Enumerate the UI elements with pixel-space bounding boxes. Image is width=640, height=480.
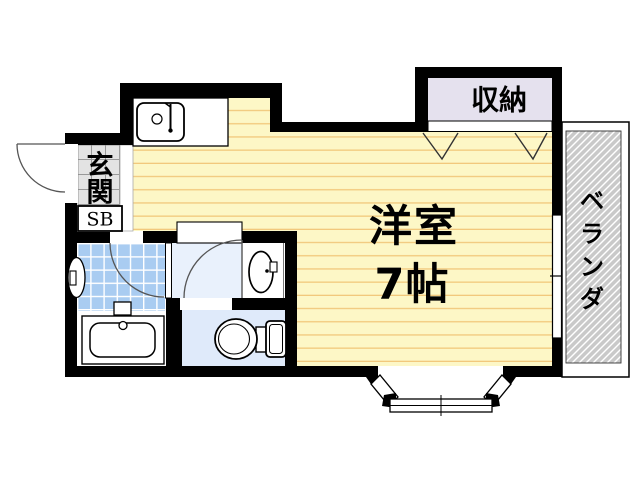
floor-plan-canvas: 洋室 7帖 収納 玄 関 SB ベ ラ ン ダ <box>0 0 640 480</box>
bathroom-tile-floor <box>77 243 165 311</box>
label-veranda-char2: ラ <box>580 220 604 248</box>
wall-bath-top-b <box>143 231 177 243</box>
washbasin-tap-dot <box>265 269 269 273</box>
label-living-size: 7帖 <box>375 260 450 310</box>
label-genkan-char2: 関 <box>87 178 114 209</box>
shower-fixture <box>70 271 76 285</box>
floor-plan-svg: 洋室 7帖 収納 玄 関 SB ベ ラ ン ダ <box>0 0 640 480</box>
sink-faucet-base <box>168 128 172 132</box>
label-closet: 収納 <box>471 84 527 117</box>
bathroom-door-opening <box>110 232 143 243</box>
wall-bottom-right <box>503 366 562 377</box>
label-genkan: 玄 関 <box>87 150 114 209</box>
toilet <box>215 319 286 359</box>
wall-top-left <box>120 83 282 98</box>
washroom-door <box>177 222 242 243</box>
label-veranda-char4: ダ <box>580 285 604 313</box>
bathtub <box>82 316 164 364</box>
wall-top-mid <box>282 122 420 132</box>
wall-washroom-bottom-a <box>166 298 180 310</box>
label-veranda-char3: ン <box>580 253 604 281</box>
washbasin-faucet <box>270 262 277 272</box>
sink-drain <box>152 114 162 124</box>
toilet-seat <box>219 324 250 354</box>
closet-door <box>428 121 552 132</box>
entrance-opening <box>65 144 78 203</box>
toilet-tank-inner <box>270 325 283 354</box>
bath-step <box>114 302 131 315</box>
label-living-room: 洋室 <box>369 202 459 252</box>
wall-step <box>270 98 282 132</box>
wall-bottom-left <box>65 366 378 377</box>
wall-bath-top-a <box>65 232 110 243</box>
wall-genkan-top <box>65 133 133 145</box>
label-shoe-box: SB <box>87 209 114 231</box>
label-veranda-char1: ベ <box>580 187 604 215</box>
bathtub-drain <box>119 322 127 330</box>
kitchen-counter <box>133 98 228 146</box>
washbasin-bowl <box>249 252 273 293</box>
bath-partition <box>166 243 172 298</box>
wall-bath-toilet-divider <box>166 310 182 366</box>
wall-closet-top <box>415 67 562 78</box>
